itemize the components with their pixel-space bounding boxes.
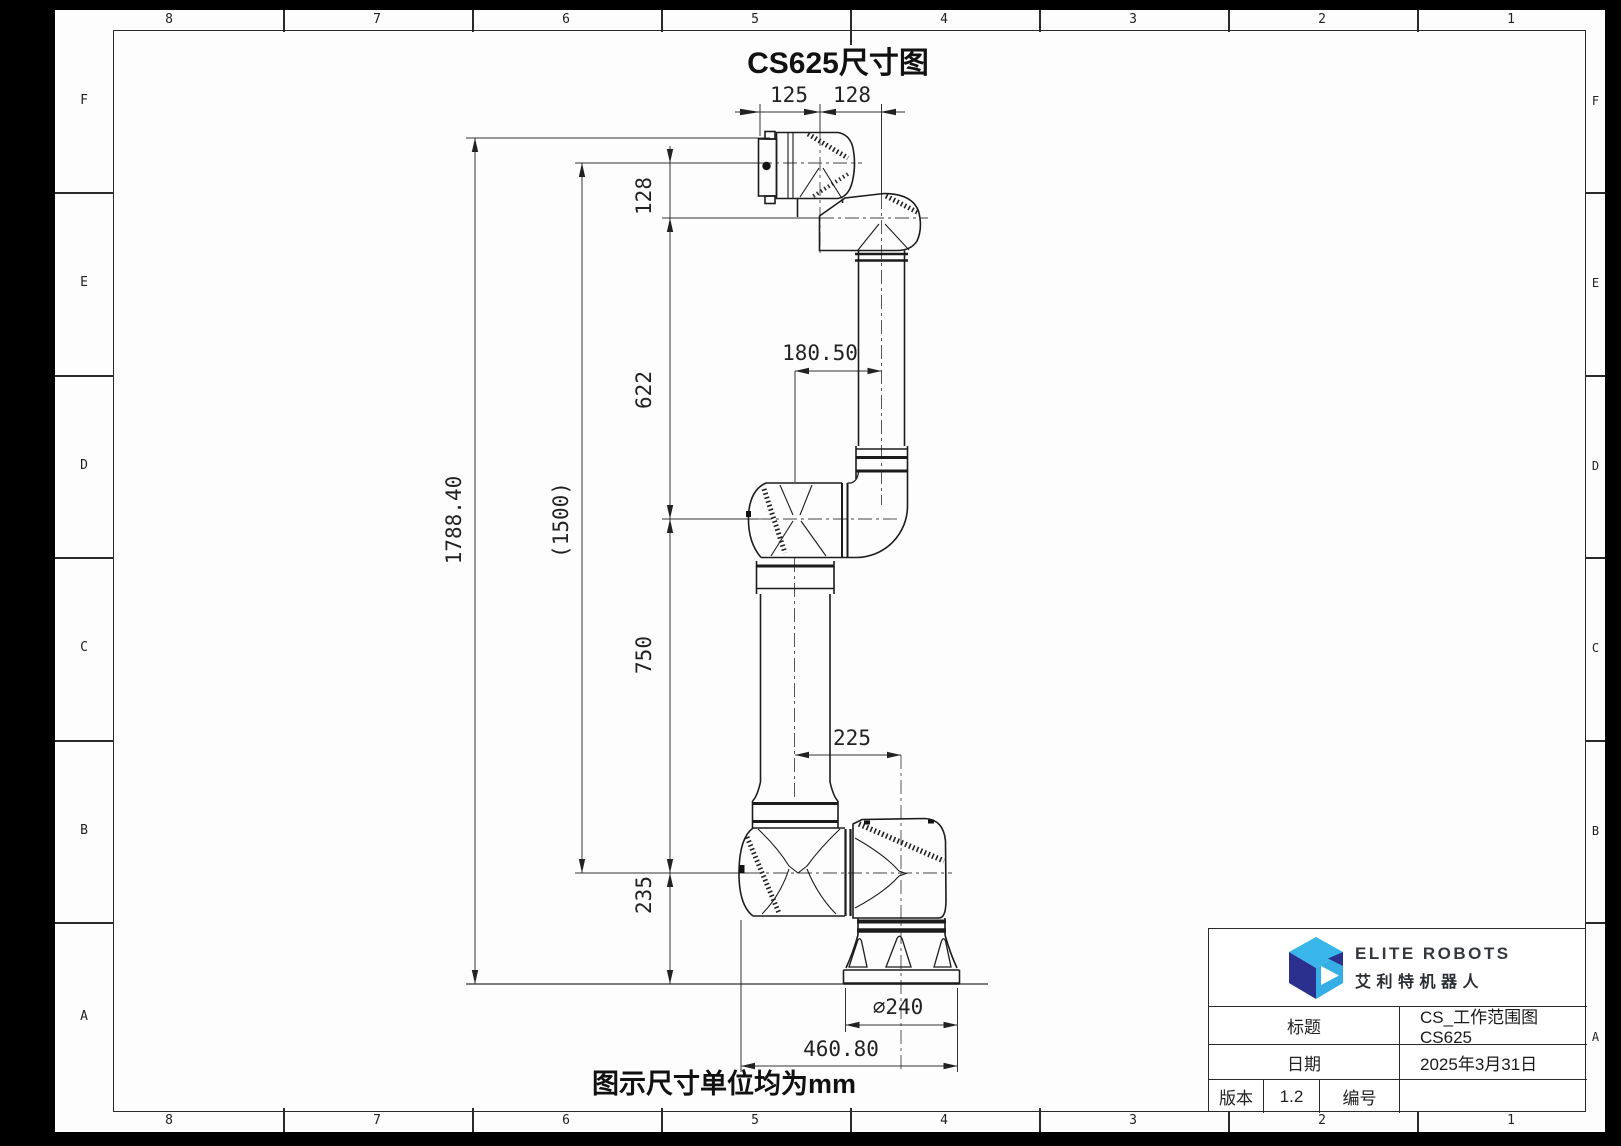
version-value: 1.2 [1280, 1087, 1304, 1107]
date-label-cell: 日期 [1209, 1044, 1399, 1079]
number-label-cell: 编号 [1319, 1079, 1399, 1113]
robot-tool-flange [759, 132, 777, 204]
brand-name-cn: 艾利特机器人 [1355, 968, 1511, 992]
brand-logo-row: ELITE ROBOTS 艾利特机器人 [1209, 929, 1587, 1006]
units-note: 图示尺寸单位均为mm [592, 1068, 856, 1099]
version-value-cell: 1.2 [1263, 1079, 1319, 1113]
date-value: 2025年3月31日 [1420, 1050, 1537, 1075]
dim-lower-arm-text: 750 [632, 636, 656, 674]
dim-working-height-text: (1500) [549, 482, 573, 558]
dim-flange-offset-text: 125 [770, 83, 808, 107]
robot-lower-arm [753, 561, 839, 828]
dim-wrist-offset-text: 128 [833, 83, 871, 107]
title-value: CS_工作范围图 CS625 [1420, 1003, 1587, 1048]
title-value-cell: CS_工作范围图 CS625 [1399, 1006, 1587, 1044]
date-label: 日期 [1287, 1050, 1321, 1075]
title-label: 标题 [1287, 1013, 1321, 1038]
version-label-cell: 版本 [1209, 1079, 1263, 1113]
dim-base-diameter-text: ∅240 [873, 995, 924, 1019]
drawing-sheet-page: 8 7 6 5 4 3 2 1 8 7 6 5 4 3 2 1 F E D C … [0, 0, 1621, 1146]
drawing-title: CS625尺寸图 [747, 47, 929, 80]
dim-upper-arm-text: 622 [632, 371, 656, 409]
brand-text: ELITE ROBOTS 艾利特机器人 [1355, 944, 1511, 992]
robot-wrist1 [777, 133, 855, 218]
dim-elbow-offset-text: 180.50 [782, 341, 858, 365]
robot-shoulder [739, 828, 851, 916]
date-value-cell: 2025年3月31日 [1399, 1044, 1587, 1079]
title-block: ELITE ROBOTS 艾利特机器人 标题 CS_工作范围图 CS625 日期… [1208, 928, 1586, 1112]
extension-lines [466, 104, 988, 1072]
title-label-cell: 标题 [1209, 1006, 1399, 1044]
robot-base [844, 819, 960, 985]
robot-wrist2 [820, 194, 921, 264]
dim-base-height-text: 235 [632, 876, 656, 914]
elite-robots-logo [1289, 937, 1343, 999]
version-label: 版本 [1219, 1084, 1253, 1109]
dim-overall-width-text: 460.80 [803, 1037, 879, 1061]
brand-name-en: ELITE ROBOTS [1355, 944, 1511, 964]
dim-shoulder-offset-text: 225 [833, 726, 871, 750]
number-value-cell [1399, 1079, 1587, 1113]
dim-overall-height-text: 1788.40 [442, 476, 466, 565]
dim-wrist-height-text: 128 [632, 177, 656, 215]
robot-elbow [746, 472, 908, 558]
number-label: 编号 [1343, 1084, 1377, 1109]
